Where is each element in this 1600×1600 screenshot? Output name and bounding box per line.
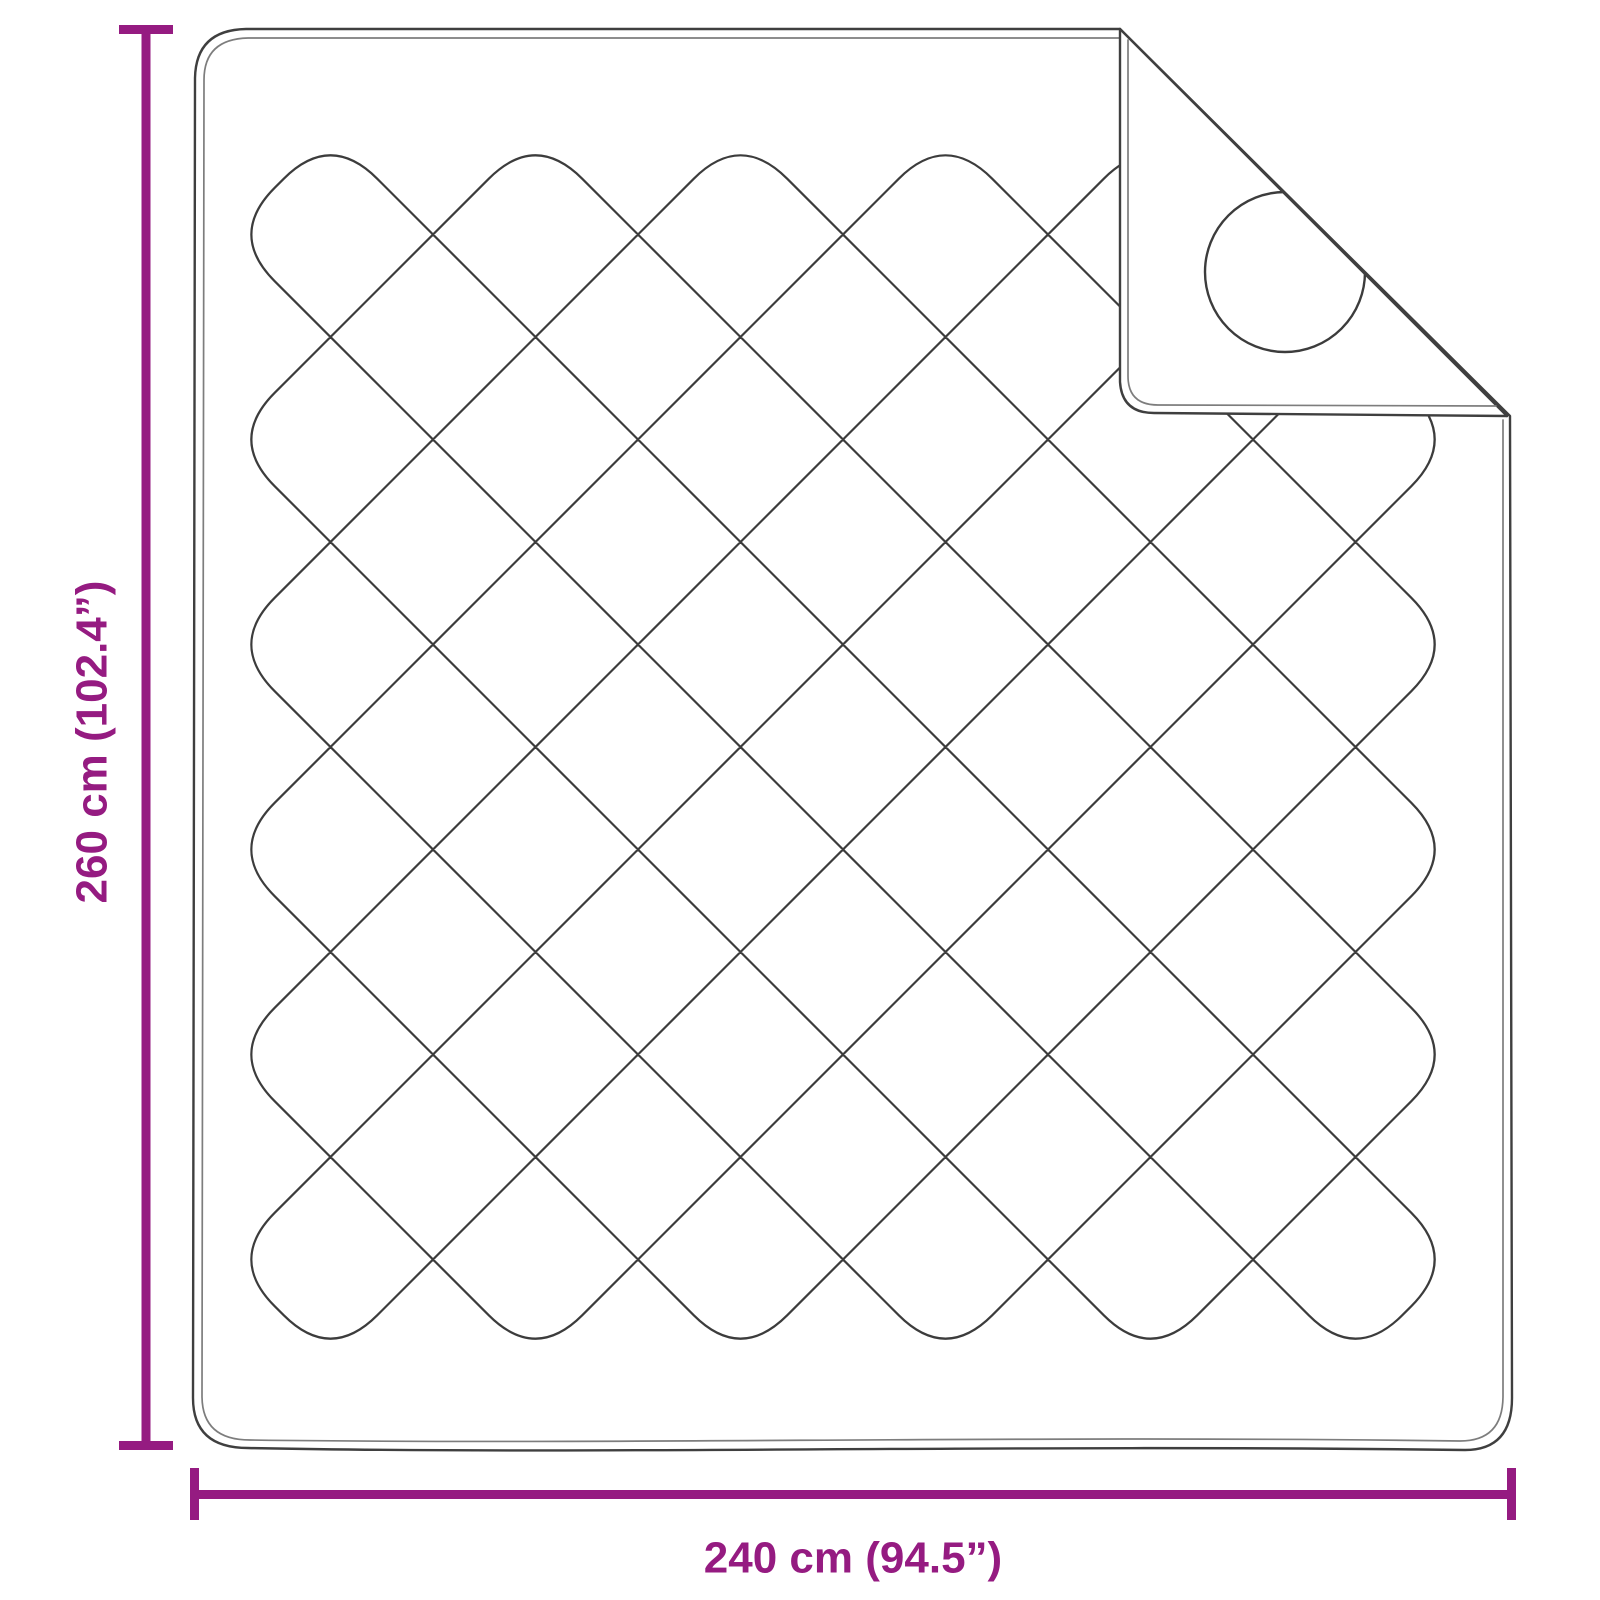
width-dimension-cap-left — [190, 1468, 199, 1520]
height-dimension-cap-top — [119, 25, 173, 34]
width-dimension-label: 240 cm (94.5”) — [704, 1534, 1002, 1583]
width-dimension-cap-right — [1507, 1468, 1516, 1520]
height-dimension-line — [142, 30, 151, 1446]
width-dimension: 240 cm (94.5”) — [190, 1468, 1516, 1583]
height-dimension: 260 cm (102.4”) — [68, 25, 174, 1450]
blanket-dimension-diagram: 260 cm (102.4”) 240 cm (94.5”) — [0, 0, 1600, 1600]
height-dimension-label: 260 cm (102.4”) — [68, 581, 117, 904]
width-dimension-line — [194, 1490, 1512, 1499]
height-dimension-cap-bottom — [119, 1441, 173, 1450]
